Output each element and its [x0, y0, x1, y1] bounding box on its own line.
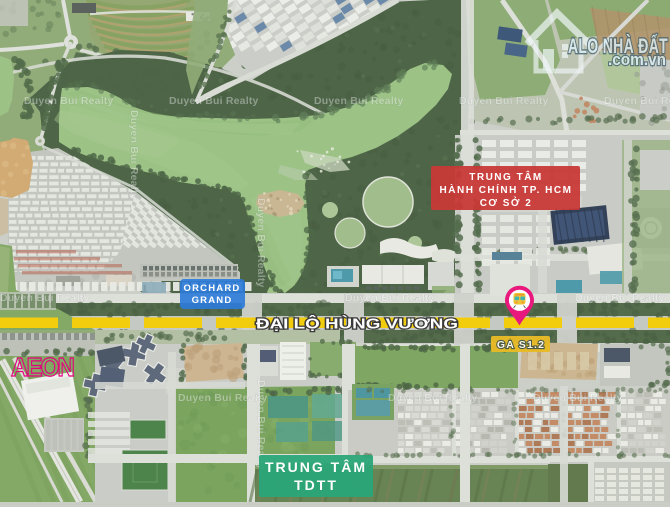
svg-text:CƠ SỞ 2: CƠ SỞ 2 — [480, 196, 533, 209]
svg-text:TDTT: TDTT — [294, 477, 338, 493]
svg-text:TRUNG TÂM: TRUNG TÂM — [265, 458, 367, 475]
svg-text:ORCHARD: ORCHARD — [184, 283, 241, 294]
svg-text:ĐẠI LỘ HÙNG VƯƠNG: ĐẠI LỘ HÙNG VƯƠNG — [256, 315, 458, 333]
svg-text:GA S1.2: GA S1.2 — [497, 339, 545, 351]
svg-text:TRUNG TÂM: TRUNG TÂM — [469, 170, 543, 183]
svg-text:.com.vn: .com.vn — [608, 50, 666, 69]
svg-text:GRAND: GRAND — [192, 295, 233, 306]
svg-text:HÀNH CHÍNH TP. HCM: HÀNH CHÍNH TP. HCM — [440, 183, 573, 196]
svg-text:AEON: AEON — [11, 352, 74, 382]
